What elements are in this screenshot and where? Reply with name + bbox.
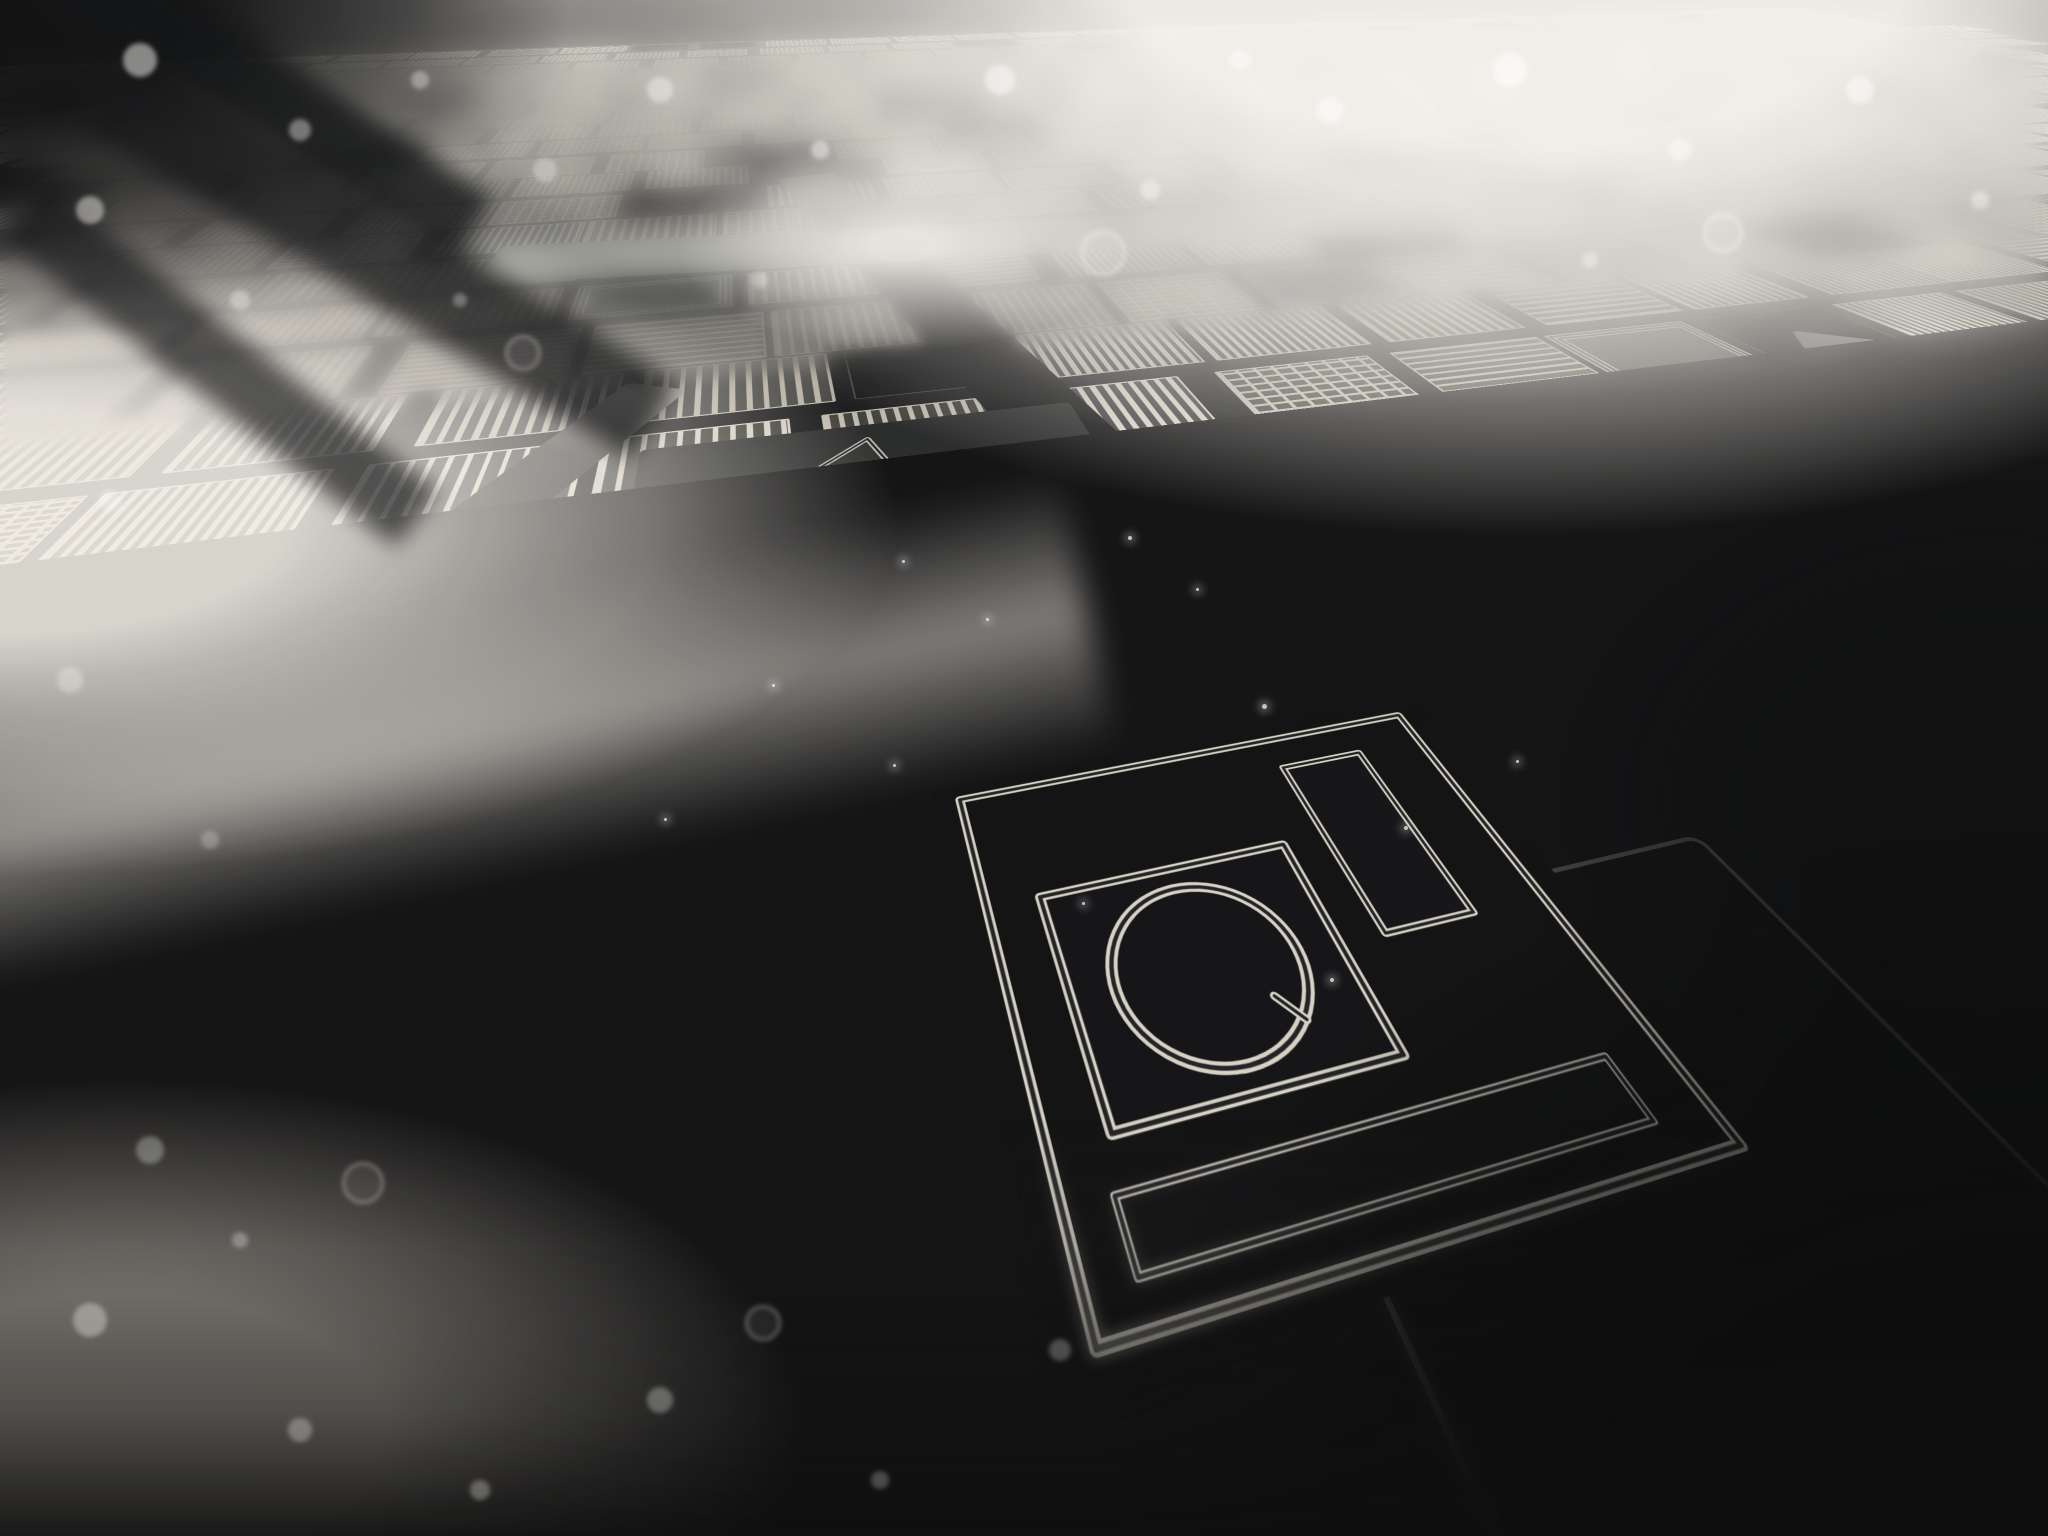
city-block [712, 102, 798, 118]
city-block [1058, 87, 1147, 100]
city-block [831, 76, 910, 87]
city-block [570, 87, 651, 99]
city-block [1206, 104, 1300, 118]
city-block [698, 42, 757, 49]
city-block [663, 83, 737, 94]
city-block [850, 121, 948, 138]
city-block [1199, 62, 1276, 71]
city-block [750, 80, 828, 91]
city-block [1290, 100, 1388, 114]
city-block [436, 103, 531, 118]
city-block [1131, 28, 1194, 34]
city-block [1268, 59, 1346, 68]
city-block [631, 95, 715, 109]
city-block [1214, 355, 1439, 429]
citymap-photo [0, 0, 2048, 1536]
city-block [647, 132, 741, 150]
city-block [946, 117, 1043, 133]
city-block [1127, 65, 1203, 74]
city-block [905, 74, 978, 84]
city-block [1120, 108, 1217, 123]
city-block [980, 71, 1055, 81]
city-block [755, 126, 847, 144]
city-block [1091, 181, 1217, 208]
city-block [567, 275, 732, 321]
city-block [1014, 31, 1079, 38]
city-block [1087, 141, 1196, 161]
city-block [1055, 67, 1136, 77]
city-block [1034, 112, 1135, 128]
city-block [630, 44, 690, 52]
city-block [976, 189, 1100, 217]
city-block [509, 111, 611, 128]
city-block [999, 45, 1071, 54]
